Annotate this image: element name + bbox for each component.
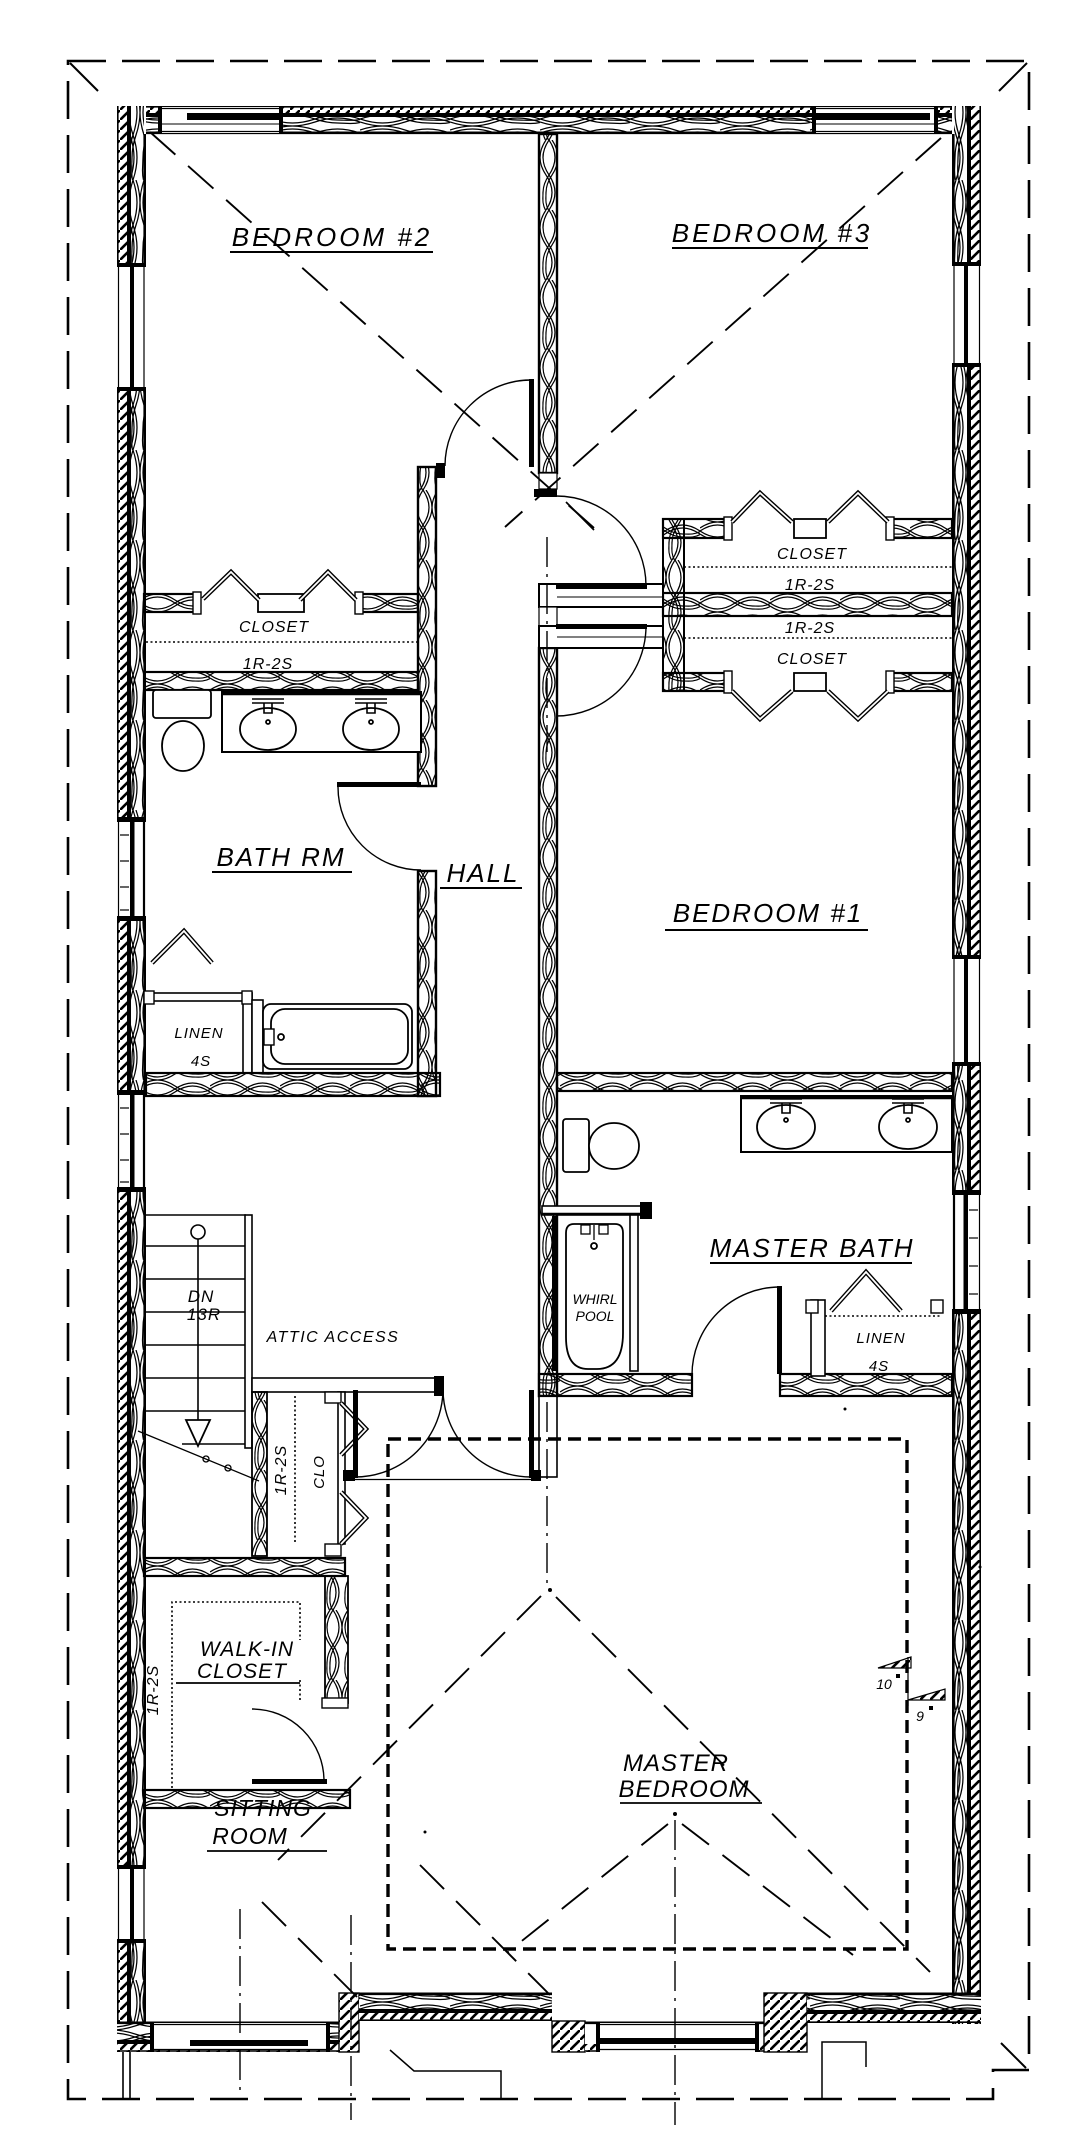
svg-text:1R-2S: 1R-2S bbox=[145, 1665, 162, 1715]
svg-text:LINEN: LINEN bbox=[856, 1330, 905, 1347]
svg-text:BEDROOM #3: BEDROOM #3 bbox=[672, 218, 873, 248]
svg-text:CLO: CLO bbox=[311, 1455, 328, 1489]
svg-text:1R-2S: 1R-2S bbox=[273, 1445, 290, 1495]
svg-text:WHIRL: WHIRL bbox=[572, 1291, 617, 1307]
svg-text:HALL: HALL bbox=[446, 858, 519, 888]
svg-text:9: 9 bbox=[916, 1708, 924, 1724]
svg-text:13R: 13R bbox=[187, 1305, 221, 1324]
svg-text:4S: 4S bbox=[191, 1053, 211, 1070]
svg-text:BATH RM: BATH RM bbox=[216, 842, 345, 872]
svg-text:1R-2S: 1R-2S bbox=[785, 577, 835, 594]
svg-text:ATTIC ACCESS: ATTIC ACCESS bbox=[266, 1329, 400, 1346]
svg-text:MASTER BATH: MASTER BATH bbox=[710, 1233, 915, 1263]
svg-text:BEDROOM #2: BEDROOM #2 bbox=[232, 222, 433, 252]
svg-text:BEDROOM: BEDROOM bbox=[618, 1776, 749, 1803]
svg-text:CLOSET: CLOSET bbox=[777, 651, 847, 668]
svg-text:1R-2S: 1R-2S bbox=[785, 620, 835, 637]
svg-text:10: 10 bbox=[876, 1676, 892, 1692]
svg-text:BEDROOM #1: BEDROOM #1 bbox=[673, 898, 864, 928]
svg-text:CLOSET: CLOSET bbox=[239, 619, 309, 636]
svg-text:WALK-IN: WALK-IN bbox=[200, 1638, 294, 1661]
svg-text:4S: 4S bbox=[869, 1358, 889, 1375]
svg-text:ROOM: ROOM bbox=[212, 1823, 288, 1849]
svg-text:SITTING: SITTING bbox=[214, 1795, 312, 1821]
svg-text:1R-2S: 1R-2S bbox=[243, 656, 293, 673]
svg-text:LINEN: LINEN bbox=[174, 1025, 223, 1042]
svg-text:POOL: POOL bbox=[576, 1308, 615, 1324]
svg-text:CLOSET: CLOSET bbox=[777, 546, 847, 563]
svg-text:CLOSET: CLOSET bbox=[197, 1660, 288, 1683]
svg-text:DN: DN bbox=[188, 1287, 215, 1306]
